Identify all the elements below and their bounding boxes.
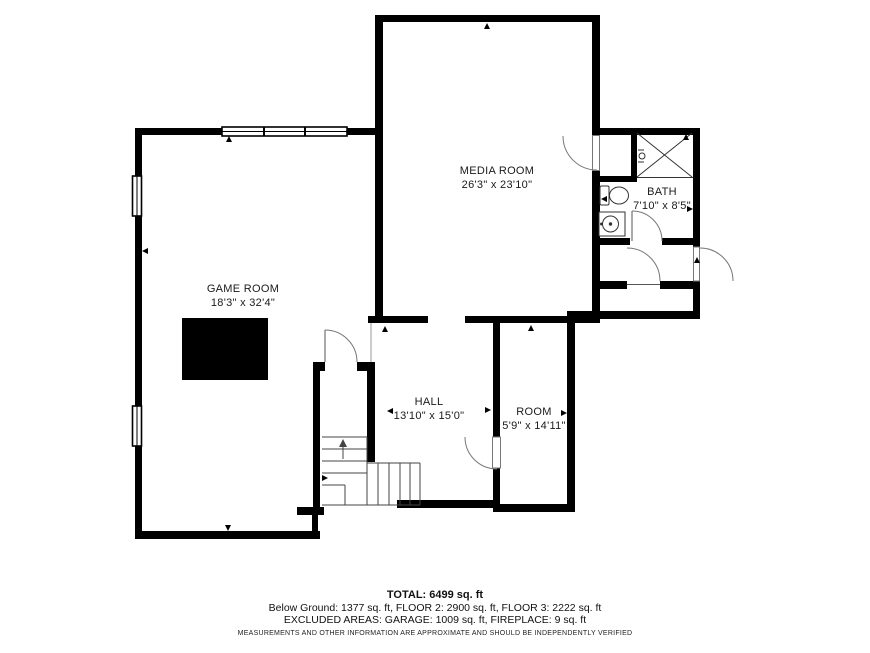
room-label-media: MEDIA ROOM 26'3" x 23'10" bbox=[460, 164, 535, 192]
door-media-closet bbox=[563, 136, 600, 171]
room-dims: 26'3" x 23'10" bbox=[460, 178, 535, 192]
fireplace-block bbox=[182, 318, 268, 380]
door-game-room bbox=[325, 330, 357, 362]
door-hall-room bbox=[465, 437, 501, 469]
footer-floors: Below Ground: 1377 sq. ft, FLOOR 2: 2900… bbox=[0, 602, 870, 614]
room-dims: 18'3" x 32'4" bbox=[207, 296, 279, 310]
floor-plan-drawing bbox=[0, 0, 870, 653]
room-name: ROOM bbox=[502, 405, 565, 419]
toilet-icon bbox=[600, 186, 629, 205]
room-dims: 13'10" x 15'0" bbox=[394, 409, 465, 423]
door-landing bbox=[627, 248, 660, 285]
shower-valve-icon bbox=[638, 150, 645, 162]
door-bath bbox=[632, 211, 662, 241]
dimension-ticks bbox=[142, 23, 700, 531]
room-dims: 7'10" x 8'5" bbox=[633, 199, 691, 213]
floor-plan: MEDIA ROOM 26'3" x 23'10" BATH 7'10" x 8… bbox=[0, 0, 870, 653]
room-name: MEDIA ROOM bbox=[460, 164, 535, 178]
window-left-upper bbox=[133, 176, 142, 216]
walls bbox=[135, 15, 700, 539]
room-label-game: GAME ROOM 18'3" x 32'4" bbox=[207, 282, 279, 310]
room-label-bath: BATH 7'10" x 8'5" bbox=[633, 185, 691, 213]
sink-icon bbox=[599, 212, 625, 236]
footer-total: TOTAL: 6499 sq. ft bbox=[0, 589, 870, 601]
room-name: BATH bbox=[633, 185, 691, 199]
door-exterior-right bbox=[694, 247, 734, 281]
room-name: GAME ROOM bbox=[207, 282, 279, 296]
room-label-hall: HALL 13'10" x 15'0" bbox=[394, 395, 465, 423]
footer-excluded: EXCLUDED AREAS: GARAGE: 1009 sq. ft, FIR… bbox=[0, 614, 870, 626]
room-label-room: ROOM 5'9" x 14'11" bbox=[502, 405, 565, 433]
room-dims: 5'9" x 14'11" bbox=[502, 419, 565, 433]
window-left-lower bbox=[133, 406, 142, 446]
room-name: HALL bbox=[394, 395, 465, 409]
footer-disclaimer: MEASUREMENTS AND OTHER INFORMATION ARE A… bbox=[0, 630, 870, 637]
window-top bbox=[222, 127, 347, 136]
